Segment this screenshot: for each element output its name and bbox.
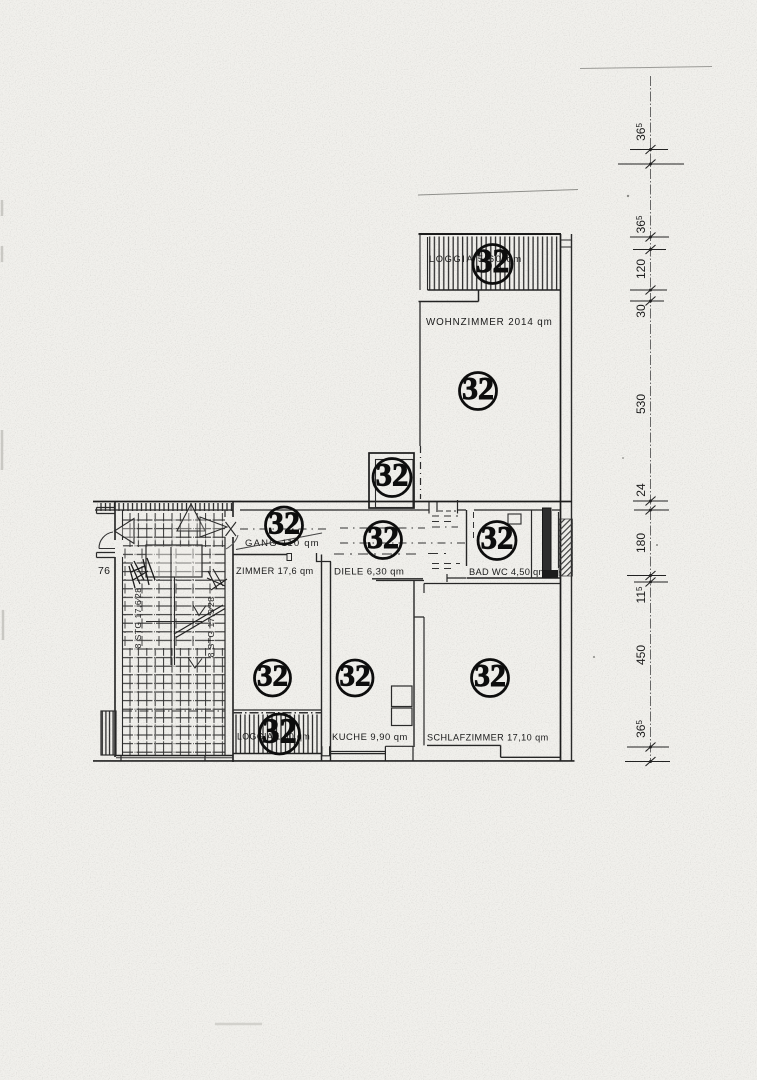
- svg-text:KUCHE 9,90 qm: KUCHE 9,90 qm: [332, 731, 408, 742]
- svg-text:32: 32: [367, 520, 399, 555]
- svg-text:32: 32: [481, 520, 514, 556]
- svg-text:180: 180: [634, 533, 648, 553]
- svg-text:8 STG 17,5⁄28: 8 STG 17,5⁄28: [206, 597, 216, 658]
- svg-text:32: 32: [257, 658, 288, 693]
- svg-text:32: 32: [462, 371, 494, 406]
- svg-text:30: 30: [634, 304, 648, 318]
- svg-text:32: 32: [262, 712, 296, 750]
- svg-text:8 STG 17,6⁄28: 8 STG 17,6⁄28: [133, 588, 143, 649]
- svg-text:DIELE 6,30 qm: DIELE 6,30 qm: [334, 567, 404, 578]
- svg-text:SCHLAFZIMMER 17,10 qm: SCHLAFZIMMER 17,10 qm: [427, 733, 549, 743]
- svg-text:24: 24: [634, 483, 648, 497]
- svg-text:530: 530: [634, 394, 648, 414]
- svg-text:LOGGIA 5,60 qm: LOGGIA 5,60 qm: [429, 254, 523, 264]
- svg-text:32: 32: [474, 658, 506, 693]
- svg-text:120: 120: [634, 259, 648, 279]
- svg-text:ZIMMER 17,6 qm: ZIMMER 17,6 qm: [236, 566, 314, 576]
- svg-text:76: 76: [98, 565, 110, 577]
- svg-text:32: 32: [268, 505, 300, 540]
- svg-text:32: 32: [340, 658, 371, 693]
- svg-text:WOHNZIMMER 2014 qm: WOHNZIMMER 2014 qm: [426, 317, 553, 328]
- svg-text:BAD WC 4,50 qm: BAD WC 4,50 qm: [469, 567, 547, 577]
- svg-text:450: 450: [634, 645, 648, 665]
- svg-text:32: 32: [376, 457, 409, 493]
